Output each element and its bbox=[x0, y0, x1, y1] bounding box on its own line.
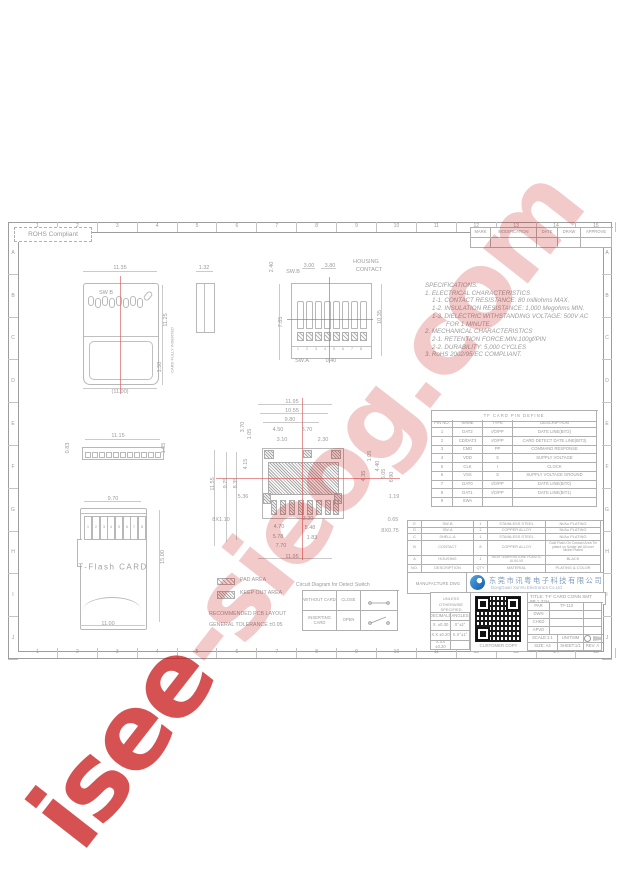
ruler-letter: H bbox=[602, 532, 612, 575]
dim-label: 3.10 bbox=[277, 437, 288, 443]
spec-line: 3. RoHS 2002/95/EC COMPLIANT. bbox=[425, 351, 600, 359]
table-cell: 8 bbox=[474, 541, 488, 556]
switch-diagram-icon bbox=[361, 591, 398, 611]
dim-label: 8X0.75 bbox=[381, 528, 398, 534]
table-cell: DAT2 bbox=[453, 428, 483, 437]
dim-label: 1.05 bbox=[161, 443, 167, 454]
ruler-number: 3 bbox=[98, 222, 138, 232]
table-cell: DRAW bbox=[558, 228, 581, 238]
table-cell: CHKD bbox=[528, 619, 550, 627]
dim-label: 1.83 bbox=[307, 535, 318, 541]
dim-label: 1.19 bbox=[389, 494, 400, 500]
ruler-letter: C bbox=[602, 318, 612, 361]
table-cell: 1 bbox=[474, 556, 488, 565]
table-cell bbox=[550, 619, 584, 627]
top-view-drawing bbox=[83, 283, 159, 385]
table-cell bbox=[550, 611, 584, 619]
table-cell: APPROVE bbox=[581, 228, 612, 238]
dim-label: 2 bbox=[95, 525, 97, 529]
dim-label: CONTACT bbox=[356, 267, 382, 273]
dim-label: 4 bbox=[110, 525, 112, 529]
table-cell: B bbox=[408, 541, 422, 556]
table-cell: A bbox=[408, 556, 422, 565]
table-cell bbox=[584, 611, 602, 619]
dim-label: 7 bbox=[351, 347, 353, 351]
dim-label: 7.85 bbox=[278, 317, 284, 328]
dim-label: 15.00 bbox=[160, 550, 166, 564]
spec-line: 1-1. CONTACT RESISTANCE: 80 milliohms MA… bbox=[432, 297, 600, 305]
ruler-letter: F bbox=[8, 446, 18, 489]
ruler-letter: I bbox=[8, 574, 18, 617]
centerline bbox=[120, 276, 121, 394]
table-cell: CLOSE bbox=[337, 591, 361, 611]
centerline bbox=[216, 478, 400, 479]
drawing-sheet-page: 123456789101112131415 123456789101112131… bbox=[0, 0, 620, 877]
dim-label: 5 bbox=[333, 347, 335, 351]
dim-label: 2 bbox=[306, 347, 308, 351]
table-cell: PP bbox=[483, 446, 513, 455]
material-table: ESW-B1STAINLESS STEELNi/Au PLATINGDSW-A1… bbox=[407, 520, 603, 574]
dim-label: 0.40 bbox=[326, 358, 337, 364]
dim-label: 5 bbox=[118, 525, 120, 529]
dim-label: T-Flash CARD bbox=[78, 563, 148, 572]
side-strip-view bbox=[196, 283, 215, 333]
dim-label: 11.15 bbox=[111, 433, 124, 439]
table-cell: COMMAND RESPONSE bbox=[513, 446, 597, 455]
dim-line bbox=[196, 271, 213, 272]
dim-label: 6.05 bbox=[381, 469, 387, 480]
ruler-number: 7 bbox=[257, 648, 297, 658]
table-cell: CMD bbox=[453, 446, 483, 455]
ruler-number: 1 bbox=[18, 648, 58, 658]
ruler-number: 5 bbox=[178, 222, 218, 232]
table-cell bbox=[558, 238, 581, 248]
ruler-number: 8 bbox=[297, 222, 337, 232]
tolerance-note-line1: UNLESS OTHERWISE bbox=[431, 596, 471, 607]
keep-out-label: KEEP OUT AREA bbox=[240, 590, 282, 596]
dim-label: 4.70 bbox=[274, 524, 285, 530]
customer-copy-label: CUSTOMER COPY bbox=[470, 641, 527, 650]
table-cell: BLACK bbox=[546, 556, 601, 565]
ruler-number: 6 bbox=[217, 648, 257, 658]
dim-label: 2.30 bbox=[318, 437, 329, 443]
ruler-letter: B bbox=[8, 275, 18, 318]
ruler-letter: C bbox=[8, 318, 18, 361]
table-cell: REV: A bbox=[584, 643, 602, 651]
ruler-number: 8 bbox=[297, 648, 337, 658]
dim-label: 3.80 bbox=[325, 263, 336, 269]
table-cell: VSS bbox=[453, 472, 483, 481]
dim-label: 6 bbox=[342, 347, 344, 351]
table-cell: DATE LINE(BIT0) bbox=[513, 481, 597, 490]
dim-label: 3.70 bbox=[240, 422, 246, 433]
table-cell: SUPPLY VOLTAGE bbox=[513, 454, 597, 463]
table-cell: CARD DETECT DATE LINE(BIT3) bbox=[513, 437, 597, 446]
recommended-pcb-label: RECOMMENDED PCB LAYOUT bbox=[209, 611, 286, 617]
ruler-letter: D bbox=[602, 360, 612, 403]
ruler-letter: J bbox=[602, 617, 612, 660]
manufacture-label: MANUFACTURE DWG bbox=[416, 581, 460, 586]
table-cell: I/O/PP bbox=[483, 428, 513, 437]
table-cell: X. ±0.30 bbox=[431, 621, 451, 631]
table-cell: S bbox=[483, 454, 513, 463]
spec-line: 2-1. RETENTION FORCE:MIN.100gf/PIN bbox=[432, 336, 600, 344]
table-cell: DAT1 bbox=[453, 489, 483, 498]
pad-area-swatch bbox=[217, 578, 235, 585]
keep-out-swatch bbox=[217, 591, 235, 599]
company-cell: 东莞市讯粤电子科技有限公司 DongGuan XunYu Electronics… bbox=[466, 572, 604, 594]
table-cell: I/O/PP bbox=[483, 437, 513, 446]
dim-label: 1.50 bbox=[157, 362, 163, 373]
table-cell bbox=[513, 498, 597, 507]
dim-label: 7 bbox=[133, 525, 135, 529]
ruler-number: 4 bbox=[138, 222, 178, 232]
dim-label: 5.36 bbox=[238, 494, 249, 500]
table-cell: SIZE: A4 bbox=[528, 643, 558, 651]
table-cell: CONTACT bbox=[422, 541, 474, 556]
dim-label: 5.78 bbox=[273, 534, 284, 540]
table-cell: DATE LINE(BIT1) bbox=[513, 489, 597, 498]
dim-line bbox=[83, 271, 157, 272]
table-cell: CLK bbox=[453, 463, 483, 472]
ruler-number: 6 bbox=[217, 222, 257, 232]
dim-line bbox=[85, 439, 160, 440]
table-cell: 2 bbox=[432, 437, 453, 446]
dim-label: 8 bbox=[360, 347, 362, 351]
ruler-letter: B bbox=[602, 275, 612, 318]
table-cell bbox=[581, 238, 612, 248]
ruler-number: 10 bbox=[377, 222, 417, 232]
dim-label: 10.55 bbox=[285, 408, 299, 414]
table-cell: 5 bbox=[432, 463, 453, 472]
table-cell: PAR bbox=[528, 603, 550, 611]
revision-table: MARKMODIFICATIONDATEDRAWAPPROVE bbox=[470, 227, 613, 248]
company-logo-icon bbox=[470, 575, 485, 590]
dim-label: (11.00) bbox=[111, 389, 128, 395]
dim-label: CARD FULLY INSERTED bbox=[170, 327, 175, 373]
table-cell bbox=[483, 498, 513, 507]
table-cell: OPEN bbox=[337, 611, 361, 631]
spec-line: SPECIFICATIONS: bbox=[425, 282, 600, 290]
table-cell bbox=[471, 238, 491, 248]
table-cell: X°±2° bbox=[451, 621, 470, 631]
dim-label: 4.15 bbox=[243, 459, 249, 470]
general-tolerance-label: GENERAL TOLERANCE ±0.05 bbox=[209, 622, 282, 628]
table-cell: HOUSING bbox=[422, 556, 474, 565]
table-cell: CLOCK bbox=[513, 463, 597, 472]
company-name-en: DongGuan XunYu Electronics Co.Ltd bbox=[491, 585, 562, 590]
spec-line: 1-3. DIELECTRIC WITHSTANDING VOLTAGE: 50… bbox=[432, 313, 600, 321]
ruler-left: ABCDEFGHIJ bbox=[8, 232, 18, 650]
table-cell: 7 bbox=[432, 481, 453, 490]
table-cell: ANGLES bbox=[451, 613, 470, 621]
ruler-letter: F bbox=[602, 446, 612, 489]
table-cell: X.X°±1° bbox=[451, 631, 470, 641]
dim-label: 9.75 bbox=[223, 478, 229, 489]
dim-line bbox=[159, 510, 160, 622]
table-cell: 1 bbox=[432, 428, 453, 437]
dim-label: 1.05 bbox=[247, 429, 253, 440]
dim-label: 4.35 bbox=[361, 471, 367, 482]
qr-code bbox=[475, 596, 521, 642]
dim-label: 6.90 bbox=[389, 472, 395, 483]
dim-label: SW.A bbox=[295, 358, 309, 364]
table-cell bbox=[584, 603, 602, 611]
dim-label: SW B bbox=[99, 290, 113, 296]
ruler-letter: D bbox=[8, 360, 18, 403]
dim-label: 1.32 bbox=[199, 265, 210, 271]
centerline bbox=[287, 319, 373, 320]
table-cell: 8 bbox=[432, 489, 453, 498]
ruler-number: 3 bbox=[98, 648, 138, 658]
ruler-number: 11 bbox=[417, 222, 457, 232]
table-cell bbox=[451, 641, 470, 650]
table-cell: TF-110 bbox=[550, 603, 584, 611]
table-cell: 3 bbox=[432, 446, 453, 455]
table-cell: 9 bbox=[432, 498, 453, 507]
spec-line: FOR 1 MINUTE. bbox=[446, 321, 600, 329]
table-cell: I/O/PP bbox=[483, 481, 513, 490]
ruler-number: 2 bbox=[58, 648, 98, 658]
table-cell: SHEET:1/1 bbox=[558, 643, 584, 651]
ruler-letter: E bbox=[602, 403, 612, 446]
dim-label: 0.83 bbox=[65, 443, 71, 454]
dim-label: 3 bbox=[103, 525, 105, 529]
table-cell: X.XX ±0.20 bbox=[431, 641, 451, 650]
table-cell: SWA bbox=[453, 498, 483, 507]
switch-diagram-icon bbox=[361, 611, 398, 631]
table-cell: COPPER ALLOY bbox=[488, 541, 546, 556]
table-cell: S bbox=[483, 472, 513, 481]
dim-label: 3.00 bbox=[304, 263, 315, 269]
dim-label: 8.35 bbox=[233, 478, 239, 489]
table-cell: I/O/PP bbox=[483, 489, 513, 498]
dim-label: 3 bbox=[315, 347, 317, 351]
rohs-compliant-badge: ROHS Compliant bbox=[14, 227, 92, 242]
dim-label: 1 bbox=[297, 347, 299, 351]
dim-label: 8 bbox=[141, 525, 143, 529]
dim-label: 0.65 bbox=[388, 517, 399, 523]
dim-label: 2.40 bbox=[269, 262, 275, 273]
table-cell bbox=[491, 238, 537, 248]
table-cell: SUPPLY VOLTAGE GROUND bbox=[513, 472, 597, 481]
dim-label: 3.70 bbox=[302, 427, 313, 433]
centerline bbox=[302, 398, 303, 560]
table-cell: DAT0 bbox=[453, 481, 483, 490]
table-cell: WITHOUT CARD bbox=[303, 591, 337, 611]
pcb-layout-drawing bbox=[262, 448, 344, 519]
detect-switch-title: Circuit Diagram for Detect Switch bbox=[296, 582, 370, 588]
table-cell: 4 bbox=[432, 454, 453, 463]
table-cell: DECIMALS bbox=[431, 613, 451, 621]
ruler-number: 9 bbox=[337, 222, 377, 232]
table-cell: DESCRIPTION bbox=[513, 420, 597, 429]
ruler-number: 10 bbox=[377, 648, 417, 658]
dim-label: 7.70 bbox=[276, 543, 287, 549]
dim-label: 11.55 bbox=[210, 477, 216, 490]
ruler-letter: G bbox=[602, 489, 612, 532]
ruler-letter: E bbox=[8, 403, 18, 446]
dim-label: 11.25 bbox=[163, 313, 169, 326]
dim-label: 1 bbox=[87, 525, 89, 529]
table-cell: MARK bbox=[471, 228, 491, 238]
table-cell: NAME bbox=[453, 420, 483, 429]
ruler-number: 4 bbox=[138, 648, 178, 658]
spec-line: 1-2. INSULATION RESISTANCE: 1,000 Megohm… bbox=[432, 305, 600, 313]
specifications-text: SPECIFICATIONS:1. ELECTRICAL CHARACTERIS… bbox=[425, 282, 600, 359]
spec-line: 1. ELECTRICAL CHARACTERISTICS bbox=[425, 290, 600, 298]
ruler-letter: J bbox=[8, 617, 18, 660]
detect-switch-table: WITHOUT CARDCLOSEINSERTING CARDOPEN bbox=[302, 590, 399, 631]
table-cell: MODIFICATION bbox=[491, 228, 537, 238]
table-cell: TYPE bbox=[483, 420, 513, 429]
dim-label: 3.20 bbox=[303, 516, 314, 522]
dim-line bbox=[214, 450, 215, 546]
tolerance-table: DECIMALSANGLESX. ±0.30X°±2°X.X ±0.20X.X°… bbox=[430, 612, 471, 650]
dim-label: HOUSING bbox=[353, 259, 379, 265]
spec-line: 2. MECHANICAL CHARACTERISTICS bbox=[425, 328, 600, 336]
pin-define-table: TF CARD PIN DEFINEPIN NO.NAMETYPEDESCRIP… bbox=[431, 410, 598, 507]
dim-label: 1.05 bbox=[367, 451, 373, 462]
dim-label: 11.95 bbox=[285, 399, 298, 405]
table-cell: 6 bbox=[432, 472, 453, 481]
table-cell: VDD bbox=[453, 454, 483, 463]
ruler-number: 9 bbox=[337, 648, 377, 658]
spec-line: 2-2. DURABILITY: 5,000 CYCLES bbox=[432, 344, 600, 352]
table-cell bbox=[537, 238, 558, 248]
dim-label: 9.80 bbox=[285, 417, 296, 423]
table-cell: HIGH TEMPERATURE PLASTIC UL94-V0 bbox=[488, 556, 546, 565]
table-cell: DATE bbox=[537, 228, 558, 238]
dim-label: 6 bbox=[126, 525, 128, 529]
dim-line bbox=[226, 452, 227, 542]
ruler-letter: H bbox=[8, 532, 18, 575]
dim-label: 5.48 bbox=[305, 525, 316, 531]
ruler-letter: G bbox=[8, 489, 18, 532]
side-view-drawing bbox=[82, 447, 164, 460]
table-cell bbox=[584, 619, 602, 627]
table-cell: INSERTING CARD bbox=[303, 611, 337, 631]
dim-label: 11.35 bbox=[113, 265, 126, 271]
table-cell: CD/DAT3 bbox=[453, 437, 483, 446]
dim-label: 4.50 bbox=[273, 427, 284, 433]
dim-label: 4 bbox=[324, 347, 326, 351]
pad-area-label: PAD AREA bbox=[240, 577, 266, 583]
title-info-rows: PARTF-110DWNCHKDAPVD bbox=[527, 602, 603, 635]
ruler-number: 7 bbox=[257, 222, 297, 232]
dim-label: 11.00 bbox=[101, 621, 114, 627]
table-cell: DATE LINE(BIT2) bbox=[513, 428, 597, 437]
dim-label: SW.B bbox=[286, 269, 300, 275]
ruler-number: 5 bbox=[178, 648, 218, 658]
dim-label: 9.70 bbox=[108, 496, 119, 502]
dim-label: 8X1.10 bbox=[212, 517, 229, 523]
centerline bbox=[329, 277, 330, 363]
table-cell: Gold Flash On Contact Area Tin plated on… bbox=[546, 541, 601, 556]
table-cell: X.X ±0.20 bbox=[431, 631, 451, 641]
table-cell: I bbox=[483, 463, 513, 472]
table-cell: PIN NO. bbox=[432, 420, 453, 429]
table-cell: DWN bbox=[528, 611, 550, 619]
dim-label: 10.35 bbox=[377, 310, 383, 324]
size-row: SIZE: A4SHEET:1/1REV: A bbox=[527, 642, 603, 651]
dim-label: 11.95 bbox=[285, 554, 298, 560]
manufacture-dwg-cell: MANUFACTURE DWG bbox=[407, 572, 469, 594]
